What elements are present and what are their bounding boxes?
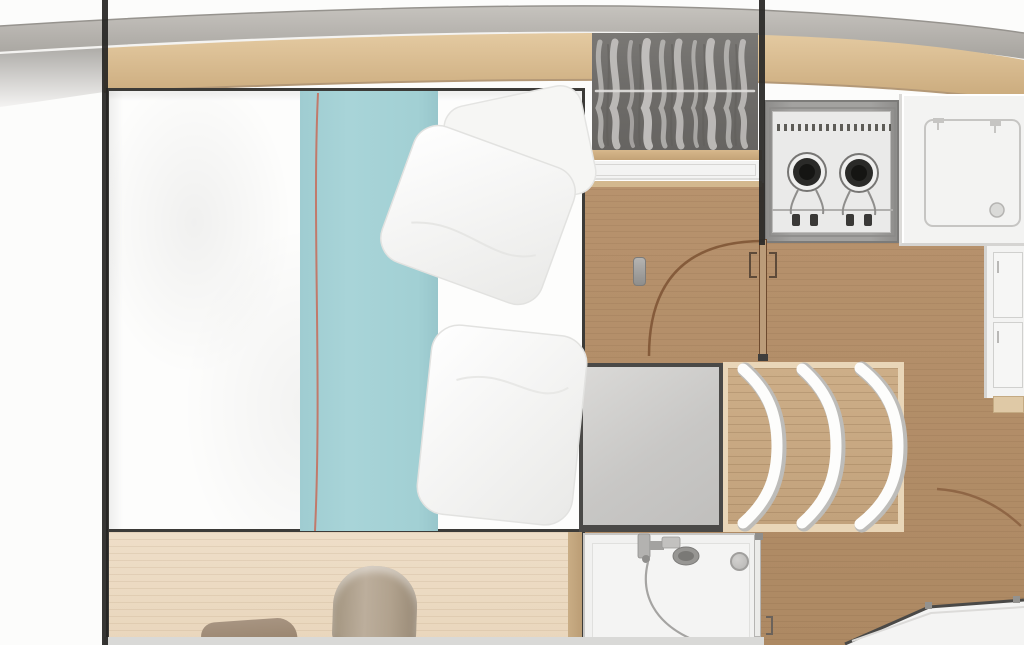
galley-cabinet-run [984, 246, 1024, 398]
stove-two-burner [764, 100, 899, 243]
duffel-bag [332, 565, 419, 645]
companionway-steps [723, 362, 904, 532]
step-treads-wood [728, 368, 898, 524]
bed-runner-teal [300, 91, 438, 531]
shower-door-hinge [755, 533, 763, 540]
galley-worktop [899, 94, 1024, 246]
cabin-door-handle [749, 252, 757, 278]
floorplan-stage [0, 0, 1024, 645]
deck-white-line [0, 33, 1024, 60]
hull-band-top-line [0, 6, 1024, 33]
cabin-door-hinge [758, 354, 768, 361]
cabin-door-leaf [759, 239, 767, 358]
shower-compartment [583, 533, 761, 639]
shower-door-handle [766, 616, 773, 635]
counter-wood-endcap [993, 396, 1024, 413]
locker-wood-trim [588, 150, 762, 160]
shower-drain [730, 552, 749, 571]
cabinet-handle [997, 261, 999, 273]
cabinet-door [993, 322, 1023, 388]
shelf-wood-line [588, 181, 762, 187]
shower-floor-panel [592, 543, 750, 637]
cabinet-handle [997, 331, 999, 343]
image-bottom-strip [104, 637, 764, 645]
wall-fitting [633, 257, 646, 286]
bulkhead-line-left [102, 0, 108, 645]
locker-shelf-front [588, 160, 762, 181]
cabinet-door [993, 252, 1023, 318]
hull-band [0, 6, 1024, 60]
topleft-shade-wedge [0, 48, 104, 107]
shower-door-leaf [754, 535, 761, 637]
stove-unit-body [772, 111, 891, 233]
hanging-locker [592, 33, 758, 150]
lower-berth-storage [106, 532, 585, 645]
cabin-door-handle [769, 252, 777, 278]
shelf-panel-line [594, 164, 756, 176]
step-landing [579, 363, 724, 532]
bulkhead-line-right [759, 0, 765, 245]
